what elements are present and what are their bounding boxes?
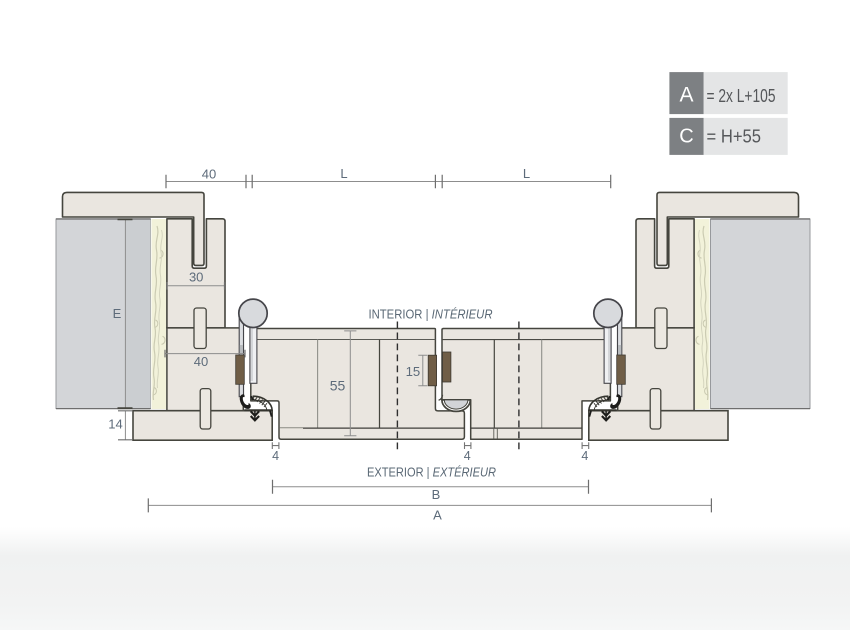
svg-text:A: A: [433, 508, 442, 523]
svg-text:C: C: [679, 126, 693, 148]
svg-text:40: 40: [194, 354, 208, 369]
svg-text:4: 4: [581, 449, 588, 463]
svg-text:4: 4: [464, 449, 471, 463]
svg-text:30: 30: [189, 270, 203, 285]
svg-text:15: 15: [406, 364, 421, 379]
svg-text:= H+55: = H+55: [707, 127, 762, 147]
svg-text:55: 55: [330, 377, 346, 393]
svg-text:40: 40: [202, 167, 216, 182]
svg-text:= 2x L+105: = 2x L+105: [707, 86, 776, 106]
svg-text:INTERIOR | INTÉRIEUR: INTERIOR | INTÉRIEUR: [369, 306, 493, 321]
svg-text:L: L: [523, 166, 530, 181]
svg-text:B: B: [432, 487, 441, 502]
svg-text:14: 14: [108, 416, 122, 431]
svg-text:L: L: [340, 166, 347, 181]
svg-text:4: 4: [272, 449, 279, 463]
svg-text:A: A: [679, 84, 693, 107]
svg-text:EXTERIOR | EXTÉRIEUR: EXTERIOR | EXTÉRIEUR: [367, 464, 496, 479]
svg-text:E: E: [113, 306, 122, 321]
